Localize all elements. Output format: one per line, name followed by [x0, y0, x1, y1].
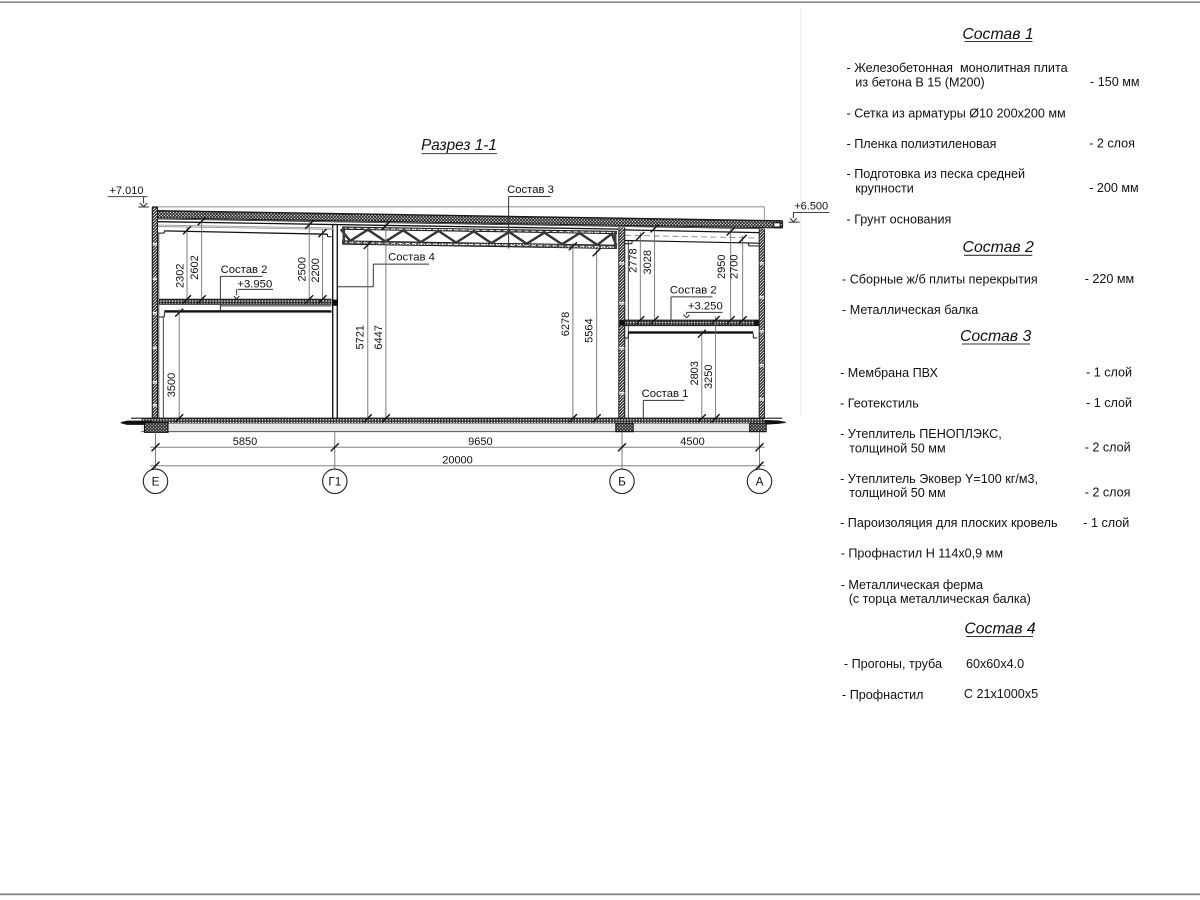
svg-text:2200: 2200 — [310, 258, 322, 282]
svg-text:3028: 3028 — [642, 250, 654, 274]
svg-text:- Грунт основания: - Грунт основания — [847, 213, 952, 227]
svg-text:Состав 1: Состав 1 — [642, 388, 689, 400]
svg-text:2500: 2500 — [297, 257, 309, 281]
svg-text:- 2 слоя: - 2 слоя — [1089, 136, 1135, 150]
svg-text:20000: 20000 — [442, 454, 473, 466]
svg-text:- 2 слой: - 2 слой — [1085, 441, 1131, 455]
svg-text:Б: Б — [618, 475, 626, 489]
svg-text:- Металлическая балка: - Металлическая балка — [842, 303, 978, 317]
svg-text:2778: 2778 — [628, 248, 640, 272]
svg-text:2950: 2950 — [716, 254, 728, 278]
svg-text:Состав 4: Состав 4 — [388, 251, 435, 263]
svg-text:Состав 2: Состав 2 — [670, 285, 717, 297]
svg-text:4500: 4500 — [680, 436, 704, 448]
svg-text:- Профнастил Н 114х0,9 мм: - Профнастил Н 114х0,9 мм — [841, 546, 1003, 560]
svg-text:- Сборные ж/б плиты перекрытия: - Сборные ж/б плиты перекрытия — [842, 273, 1038, 287]
svg-text:- 150 мм: - 150 мм — [1090, 75, 1140, 89]
svg-text:(с торца металлическая балка): (с торца металлическая балка) — [849, 592, 1031, 606]
svg-text:2302: 2302 — [174, 264, 186, 288]
svg-text:- 2 слоя: - 2 слоя — [1085, 485, 1131, 499]
svg-text:+6.500: +6.500 — [794, 201, 828, 213]
svg-text:Состав 3: Состав 3 — [507, 184, 554, 196]
svg-text:- Металлическая ферма: - Металлическая ферма — [841, 578, 983, 592]
svg-text:Состав 3: Состав 3 — [960, 328, 1031, 345]
svg-text:- Пленка полиэтиленовая: - Пленка полиэтиленовая — [847, 137, 997, 151]
svg-text:- 220 мм: - 220 мм — [1085, 272, 1135, 286]
svg-text:- Утеплитель ПЕНОПЛЭКС,: - Утеплитель ПЕНОПЛЭКС, — [840, 427, 1002, 441]
svg-text:Состав 4: Состав 4 — [964, 620, 1035, 637]
svg-text:С 21х1000х5: С 21х1000х5 — [964, 687, 1038, 701]
svg-text:А: А — [756, 475, 764, 489]
svg-text:толщиной 50 мм: толщиной 50 мм — [849, 486, 945, 500]
svg-text:Г1: Г1 — [328, 475, 341, 489]
svg-text:- Геотекстиль: - Геотекстиль — [840, 396, 919, 410]
svg-text:Состав 2: Состав 2 — [963, 239, 1034, 256]
svg-text:толщиной 50 мм: толщиной 50 мм — [849, 441, 945, 455]
svg-text:9650: 9650 — [468, 436, 492, 448]
svg-text:+3.250: +3.250 — [688, 300, 723, 312]
svg-text:Разрез 1-1: Разрез 1-1 — [421, 137, 497, 154]
svg-text:- 1 слой: - 1 слой — [1083, 516, 1129, 530]
svg-text:- Мембрана ПВХ: - Мембрана ПВХ — [840, 366, 938, 380]
svg-text:60х60х4.0: 60х60х4.0 — [966, 657, 1024, 671]
svg-text:2602: 2602 — [189, 255, 201, 279]
svg-text:Состав 1: Состав 1 — [962, 26, 1033, 43]
svg-text:крупности: крупности — [855, 182, 914, 196]
svg-text:2803: 2803 — [689, 361, 701, 385]
svg-text:- Профнастил: - Профнастил — [842, 688, 924, 702]
svg-text:- Пароизоляция для плоских кро: - Пароизоляция для плоских кровель — [840, 516, 1058, 530]
svg-text:6278: 6278 — [560, 312, 572, 336]
svg-text:- 1 слой: - 1 слой — [1086, 396, 1132, 410]
svg-text:+7.010: +7.010 — [110, 185, 144, 197]
svg-text:6447: 6447 — [373, 325, 385, 349]
svg-text:из бетона В 15 (М200): из бетона В 15 (М200) — [855, 75, 984, 89]
svg-text:- Подготовка из песка средней: - Подготовка из песка средней — [847, 167, 1026, 181]
svg-text:- Сетка из арматуры Ø10 200х20: - Сетка из арматуры Ø10 200х200 мм — [847, 106, 1066, 120]
svg-text:- Железобетонная монолитная п: - Железобетонная монолитная плита — [847, 61, 1068, 75]
svg-text:Состав 2: Состав 2 — [221, 264, 268, 276]
svg-text:3500: 3500 — [166, 373, 178, 397]
svg-text:2700: 2700 — [728, 254, 740, 278]
svg-text:5564: 5564 — [584, 318, 596, 342]
svg-text:- Прогоны, труба: - Прогоны, труба — [844, 657, 942, 671]
svg-text:+3.950: +3.950 — [237, 278, 272, 290]
svg-text:- 200 мм: - 200 мм — [1089, 181, 1139, 195]
svg-text:5721: 5721 — [354, 325, 366, 349]
svg-text:- Утеплитель Эковер Y=100 кг/м: - Утеплитель Эковер Y=100 кг/м3, — [840, 472, 1038, 486]
svg-text:5850: 5850 — [233, 436, 257, 448]
svg-text:3250: 3250 — [703, 364, 715, 388]
svg-text:- 1 слой: - 1 слой — [1086, 366, 1132, 380]
svg-text:Е: Е — [152, 475, 160, 489]
